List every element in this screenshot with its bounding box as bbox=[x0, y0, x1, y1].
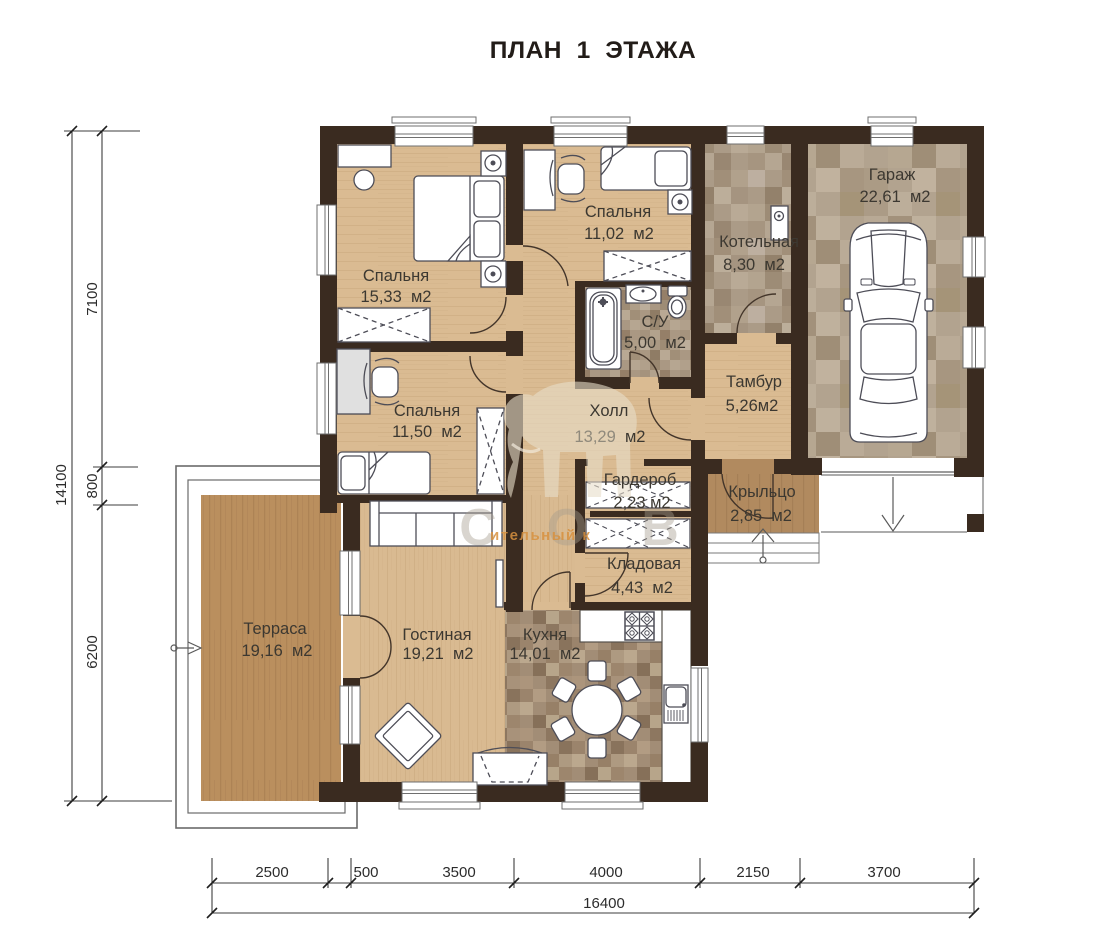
svg-text:Гостиная: Гостиная bbox=[402, 626, 471, 644]
svg-text:2500: 2500 bbox=[255, 864, 288, 881]
svg-text:Крыльцо: Крыльцо bbox=[728, 483, 795, 501]
svg-text:6200: 6200 bbox=[84, 635, 101, 668]
svg-text:5,00 м2: 5,00 м2 bbox=[624, 334, 686, 352]
svg-text:7100: 7100 bbox=[84, 282, 101, 315]
svg-text:11,02 м2: 11,02 м2 bbox=[584, 225, 654, 243]
svg-text:Спальня: Спальня bbox=[585, 203, 651, 221]
svg-text:22,61 м2: 22,61 м2 bbox=[860, 188, 931, 206]
svg-text:Кладовая: Кладовая bbox=[607, 555, 681, 573]
svg-text:13,29 м2: 13,29 м2 bbox=[575, 428, 646, 446]
svg-text:Котельная: Котельная bbox=[719, 233, 799, 251]
svg-text:5,26м2: 5,26м2 bbox=[726, 397, 779, 415]
svg-text:16400: 16400 bbox=[583, 895, 625, 912]
svg-text:ПЛАН 1 ЭТАЖА: ПЛАН 1 ЭТАЖА bbox=[490, 37, 696, 64]
svg-text:ительный к: ительный к bbox=[490, 527, 591, 544]
svg-text:15,33 м2: 15,33 м2 bbox=[361, 288, 432, 306]
svg-text:500: 500 bbox=[353, 864, 378, 881]
svg-text:Тамбур: Тамбур bbox=[726, 373, 782, 391]
svg-text:3700: 3700 bbox=[867, 864, 900, 881]
svg-text:Терраса: Терраса bbox=[243, 620, 307, 638]
svg-text:3500: 3500 bbox=[442, 864, 475, 881]
svg-text:4000: 4000 bbox=[589, 864, 622, 881]
svg-text:Гардероб: Гардероб bbox=[604, 471, 677, 489]
svg-text:14100: 14100 bbox=[53, 464, 70, 506]
svg-text:800: 800 bbox=[84, 473, 101, 498]
svg-text:2,85 м2: 2,85 м2 bbox=[730, 507, 792, 525]
svg-text:Кухня: Кухня bbox=[523, 626, 567, 644]
svg-text:2150: 2150 bbox=[736, 864, 769, 881]
svg-text:Спальня: Спальня bbox=[394, 402, 460, 420]
svg-text:С/У: С/У bbox=[642, 313, 670, 331]
svg-text:Холл: Холл bbox=[590, 402, 629, 420]
svg-text:Гараж: Гараж bbox=[869, 166, 916, 184]
svg-text:19,16 м2: 19,16 м2 bbox=[242, 642, 313, 660]
svg-text:19,21 м2: 19,21 м2 bbox=[403, 645, 474, 663]
svg-text:2,23 м2: 2,23 м2 bbox=[613, 494, 670, 512]
svg-text:14,01 м2: 14,01 м2 bbox=[510, 645, 581, 663]
svg-text:Спальня: Спальня bbox=[363, 267, 429, 285]
svg-text:11,50 м2: 11,50 м2 bbox=[392, 423, 462, 441]
svg-text:4,43 м2: 4,43 м2 bbox=[611, 579, 673, 597]
svg-text:8,30 м2: 8,30 м2 bbox=[723, 256, 785, 274]
